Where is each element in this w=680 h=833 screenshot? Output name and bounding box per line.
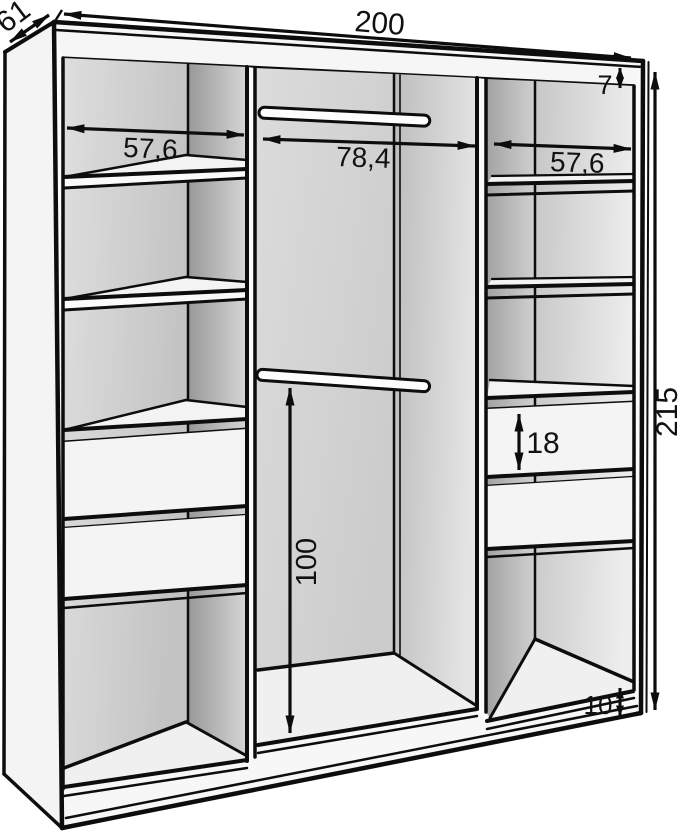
middle-section-width-label: 78,4 [336,141,392,174]
dimension-total-height: 215 [651,72,680,710]
drawer-front [64,429,247,519]
right-drawer-unit [487,380,634,557]
base-height-label: 10 [584,690,613,720]
hanging-height-label: 100 [291,538,323,586]
left-partition-front-edge [247,67,255,761]
total-height-label: 215 [651,387,680,437]
wardrobe-carcass [4,22,649,828]
front-right-edge [634,61,649,713]
diagram-canvas: 61 200 7 215 57,6 78,4 57,6 [0,0,680,833]
wardrobe-dimension-diagram: 61 200 7 215 57,6 78,4 57,6 [0,0,680,833]
right-section-width-label: 57,6 [550,146,606,179]
drawer-front [487,477,634,549]
depth-label: 61 [0,0,37,40]
left-section-width-label: 57,6 [123,132,179,165]
right-partition-front-edge [477,78,486,712]
drawer-front [487,402,634,477]
total-width-label: 200 [353,5,406,42]
top-panel-label: 7 [597,70,612,100]
drawer-height-label: 18 [526,427,559,460]
